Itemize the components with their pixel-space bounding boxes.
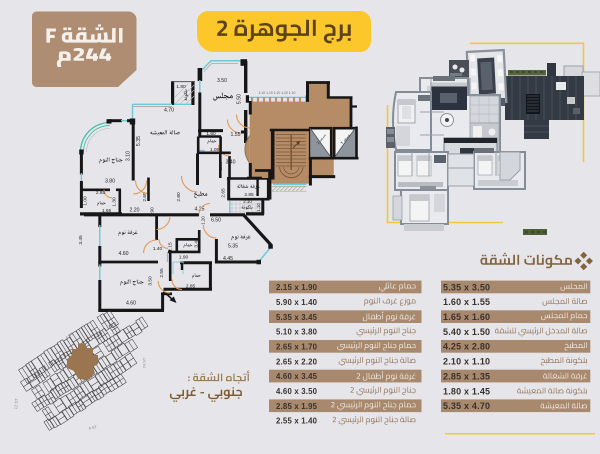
svg-text:2.80: 2.80 bbox=[176, 192, 182, 202]
svg-text:1.10: 1.10 bbox=[256, 203, 261, 212]
svg-text:1.60: 1.60 bbox=[206, 131, 216, 137]
svg-text:2.65: 2.65 bbox=[220, 188, 226, 198]
svg-text:5.10 x 3.80: 5.10 x 3.80 bbox=[276, 328, 318, 337]
svg-text:12 ST: 12 ST bbox=[13, 398, 19, 410]
svg-text:1.80 x 1.45: 1.80 x 1.45 bbox=[443, 386, 490, 396]
svg-text:2.55: 2.55 bbox=[159, 268, 165, 278]
svg-text:2.65 x 2.20: 2.65 x 2.20 bbox=[276, 357, 318, 366]
svg-text:2.85 x 1.35: 2.85 x 1.35 bbox=[443, 371, 490, 381]
svg-text:3.10: 3.10 bbox=[126, 151, 132, 161]
svg-text:1.65 x 1.60: 1.65 x 1.60 bbox=[443, 312, 490, 322]
svg-text:3.40: 3.40 bbox=[225, 160, 235, 166]
svg-text:3.80: 3.80 bbox=[105, 179, 115, 185]
svg-text:5.40 x 1.50: 5.40 x 1.50 bbox=[443, 327, 490, 337]
svg-text:6.50: 6.50 bbox=[211, 218, 221, 224]
svg-text:1.20: 1.20 bbox=[201, 216, 206, 225]
svg-text:1.90: 1.90 bbox=[179, 255, 189, 261]
svg-text:5.35 x 3.45: 5.35 x 3.45 bbox=[276, 313, 318, 322]
svg-text:24 ST: 24 ST bbox=[142, 357, 147, 368]
svg-text:1.55: 1.55 bbox=[230, 132, 240, 138]
svg-text:2.85: 2.85 bbox=[244, 192, 254, 198]
svg-text:4.70: 4.70 bbox=[164, 108, 174, 114]
svg-text:3.45: 3.45 bbox=[194, 238, 200, 248]
svg-text:2.85: 2.85 bbox=[186, 284, 196, 290]
svg-text:1.40: 1.40 bbox=[153, 246, 163, 252]
svg-text:1.80: 1.80 bbox=[176, 84, 186, 90]
svg-text:4.60: 4.60 bbox=[126, 301, 136, 307]
svg-text:4.60: 4.60 bbox=[118, 251, 128, 257]
svg-text:1.60 x 1.55: 1.60 x 1.55 bbox=[443, 297, 490, 307]
svg-text:2.55 x 1.40: 2.55 x 1.40 bbox=[276, 417, 318, 426]
svg-text:3.50: 3.50 bbox=[148, 276, 154, 286]
svg-text:1.05: 1.05 bbox=[210, 147, 220, 153]
svg-text:4.45: 4.45 bbox=[223, 256, 233, 262]
svg-text:5.35: 5.35 bbox=[136, 136, 142, 146]
svg-text:2.15 x 1.90: 2.15 x 1.90 bbox=[276, 283, 318, 292]
svg-text:2.20: 2.20 bbox=[129, 208, 139, 214]
svg-text:5.35 x 4.70: 5.35 x 4.70 bbox=[443, 401, 490, 411]
svg-text:5.35 x 3.50: 5.35 x 3.50 bbox=[443, 282, 490, 292]
svg-text:2.10: 2.10 bbox=[243, 199, 252, 204]
svg-text:2.65 x 1.70: 2.65 x 1.70 bbox=[276, 343, 318, 352]
svg-text:4.25 x 2.80: 4.25 x 2.80 bbox=[443, 342, 490, 352]
svg-text:2.10 x 1.10: 2.10 x 1.10 bbox=[443, 357, 490, 367]
svg-text:3.45: 3.45 bbox=[78, 235, 84, 245]
svg-text:1.10 1.10 1.10 1.10 1.10: 1.10 1.10 1.10 1.10 1.10 bbox=[259, 91, 296, 95]
svg-text:4.60 x 3.45: 4.60 x 3.45 bbox=[276, 372, 318, 381]
svg-text:1.30: 1.30 bbox=[112, 197, 118, 207]
svg-text:2.85 x 1.95: 2.85 x 1.95 bbox=[276, 402, 318, 411]
svg-text:5.90 x 1.40: 5.90 x 1.40 bbox=[276, 298, 318, 307]
svg-text:1.50: 1.50 bbox=[218, 161, 224, 171]
svg-text:2.65: 2.65 bbox=[96, 190, 106, 196]
svg-text:4.60 x 3.50: 4.60 x 3.50 bbox=[276, 387, 318, 396]
svg-text:1.00: 1.00 bbox=[82, 196, 88, 206]
svg-text:5.35: 5.35 bbox=[228, 244, 238, 250]
svg-text:3.50: 3.50 bbox=[217, 78, 227, 84]
svg-text:5.50: 5.50 bbox=[237, 94, 243, 104]
